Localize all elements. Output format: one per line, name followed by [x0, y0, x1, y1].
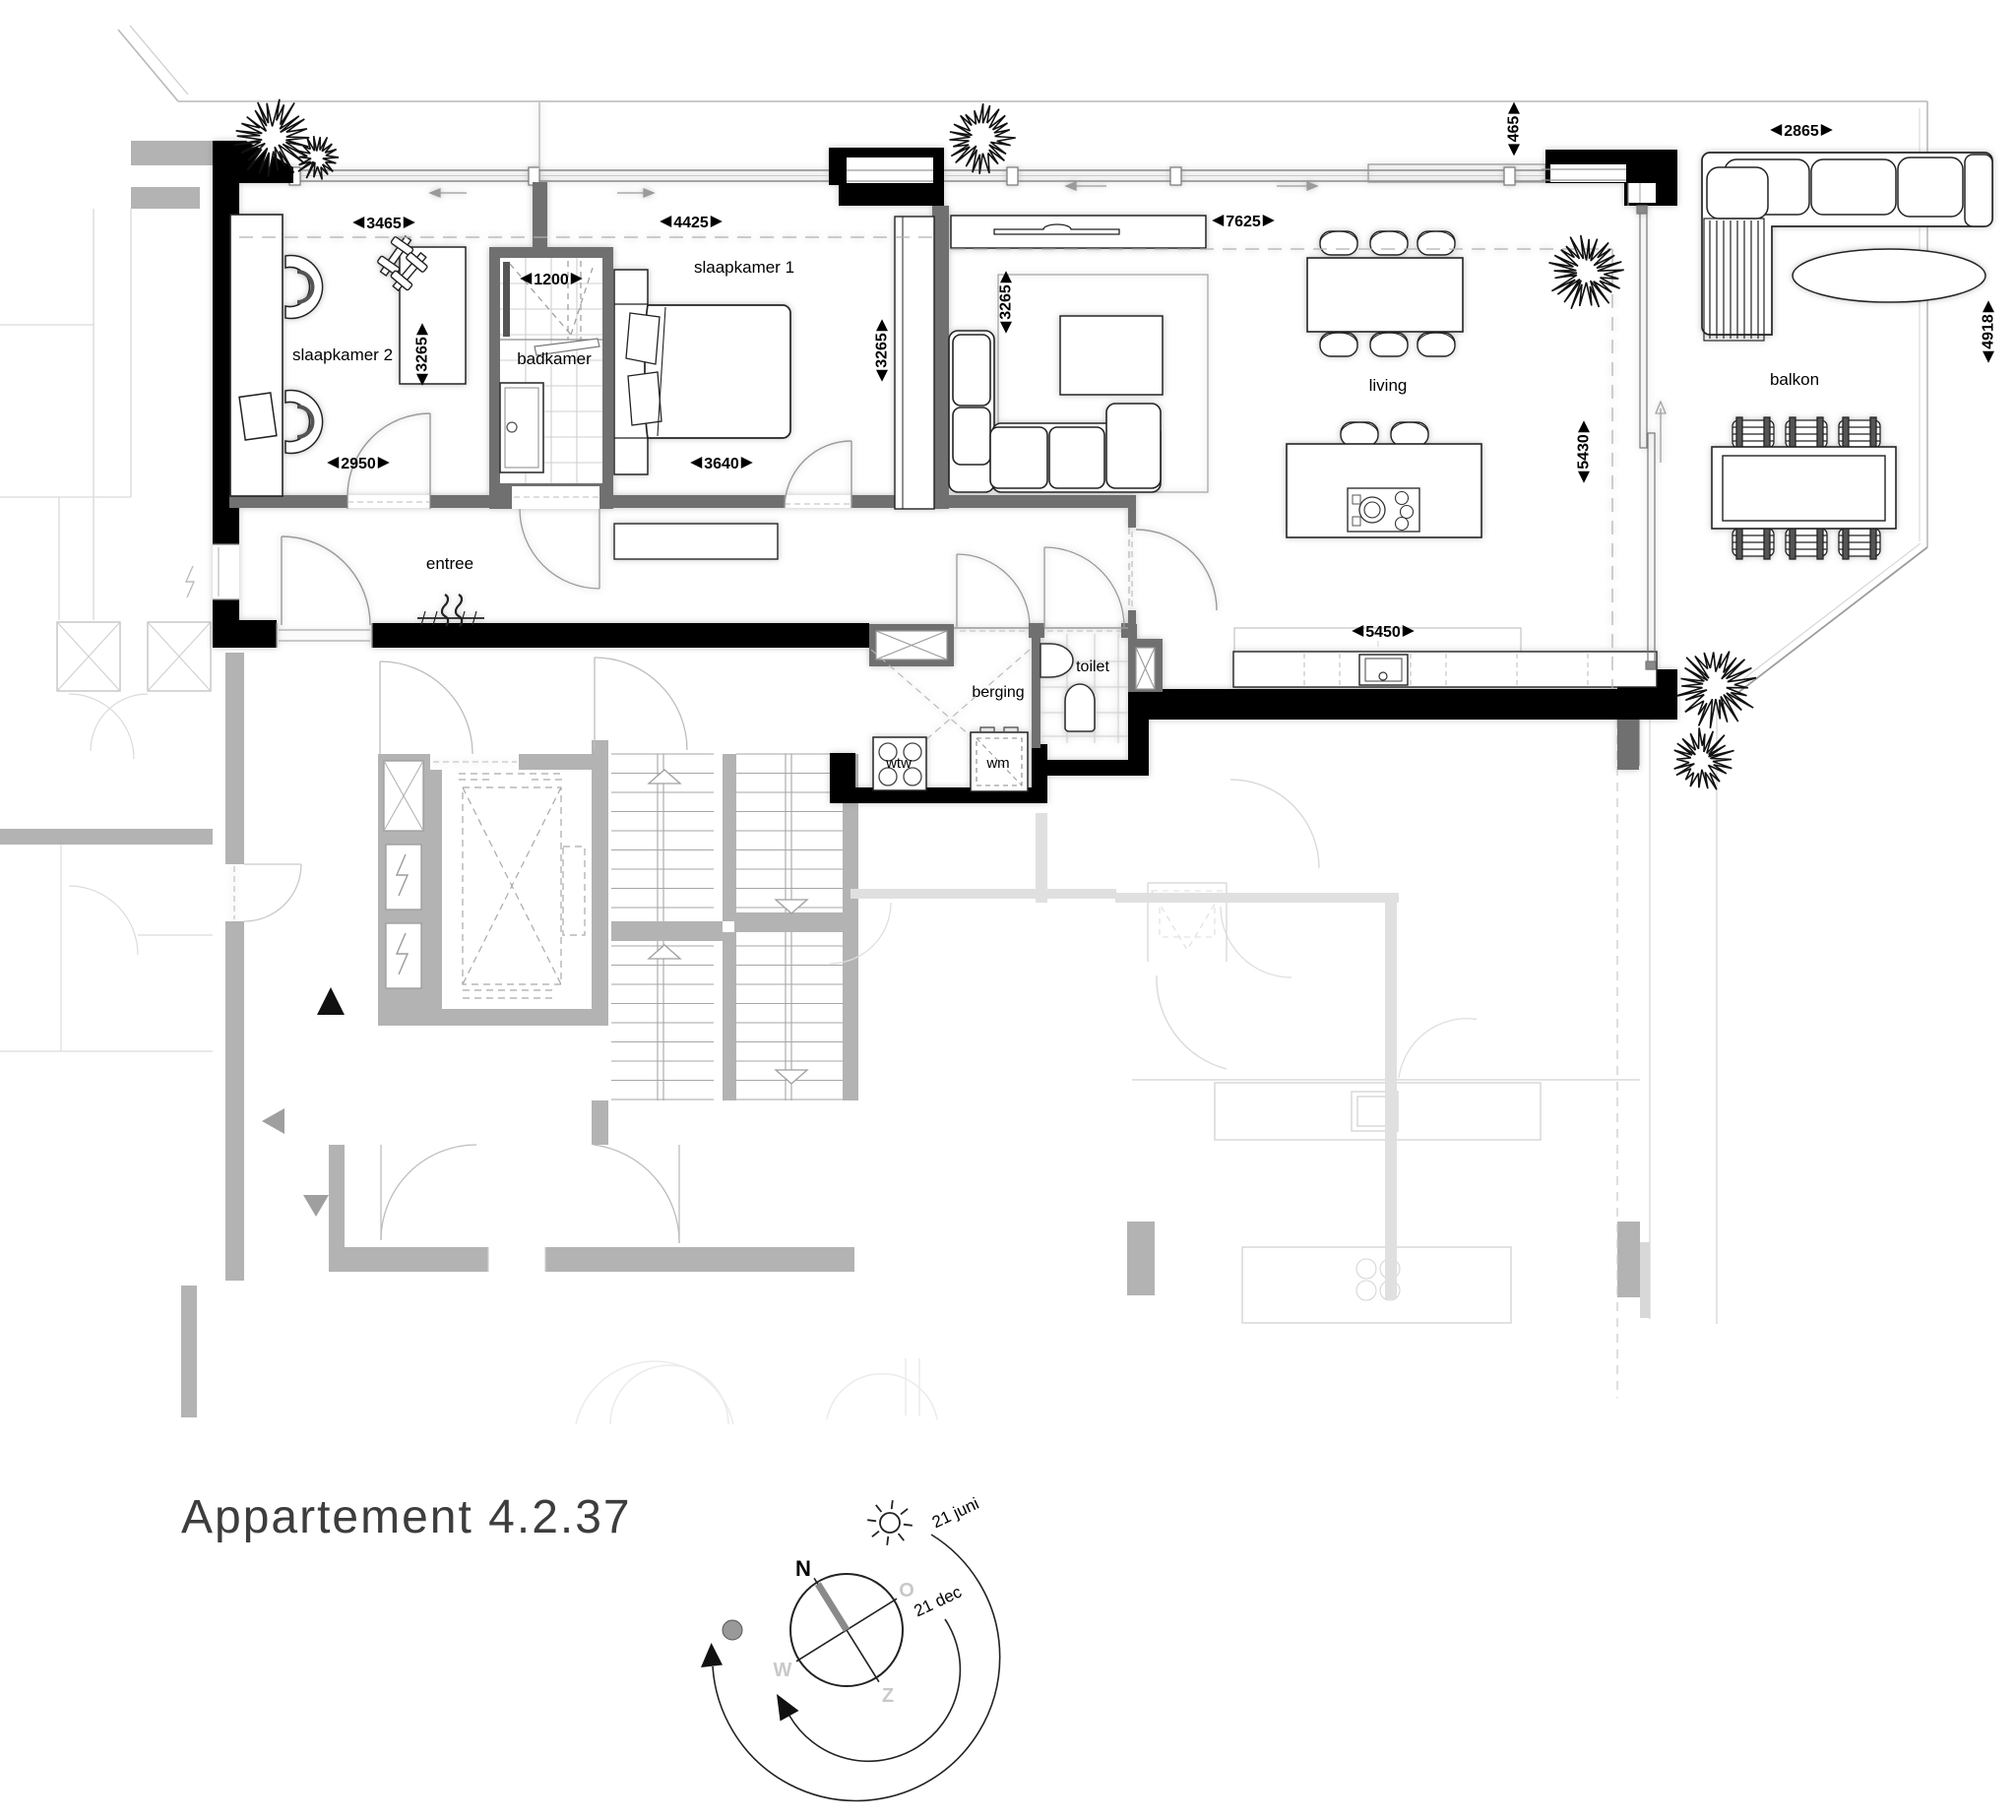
- svg-text:1200: 1200: [534, 272, 569, 288]
- svg-text:3265: 3265: [414, 337, 431, 372]
- svg-text:wm: wm: [985, 755, 1009, 772]
- svg-text:berging: berging: [972, 684, 1024, 701]
- svg-text:slaapkamer 1: slaapkamer 1: [694, 258, 794, 277]
- svg-text:N: N: [795, 1556, 811, 1581]
- svg-text:living: living: [1369, 376, 1408, 395]
- svg-text:toilet: toilet: [1076, 659, 1109, 675]
- svg-text:3265: 3265: [874, 333, 891, 368]
- svg-text:4425: 4425: [673, 215, 709, 231]
- svg-text:slaapkamer 2: slaapkamer 2: [292, 345, 393, 364]
- svg-text:3465: 3465: [366, 216, 402, 232]
- svg-text:W: W: [774, 1660, 792, 1681]
- svg-text:Z: Z: [882, 1685, 894, 1707]
- svg-text:badkamer: badkamer: [517, 349, 592, 368]
- svg-text:3640: 3640: [704, 456, 739, 472]
- svg-text:2865: 2865: [1784, 123, 1819, 140]
- svg-text:3265: 3265: [998, 284, 1015, 320]
- svg-text:2950: 2950: [341, 456, 376, 472]
- svg-text:4918: 4918: [1981, 314, 1997, 349]
- svg-text:7625: 7625: [1226, 214, 1261, 230]
- svg-text:465: 465: [1506, 116, 1523, 143]
- svg-text:5430: 5430: [1576, 434, 1593, 470]
- svg-text:wtw: wtw: [885, 755, 912, 772]
- svg-text:balkon: balkon: [1770, 370, 1819, 389]
- svg-text:entree: entree: [426, 554, 473, 573]
- svg-text:5450: 5450: [1365, 624, 1401, 641]
- svg-text:Appartement 4.2.37: Appartement 4.2.37: [181, 1491, 632, 1543]
- svg-text:O: O: [899, 1580, 914, 1601]
